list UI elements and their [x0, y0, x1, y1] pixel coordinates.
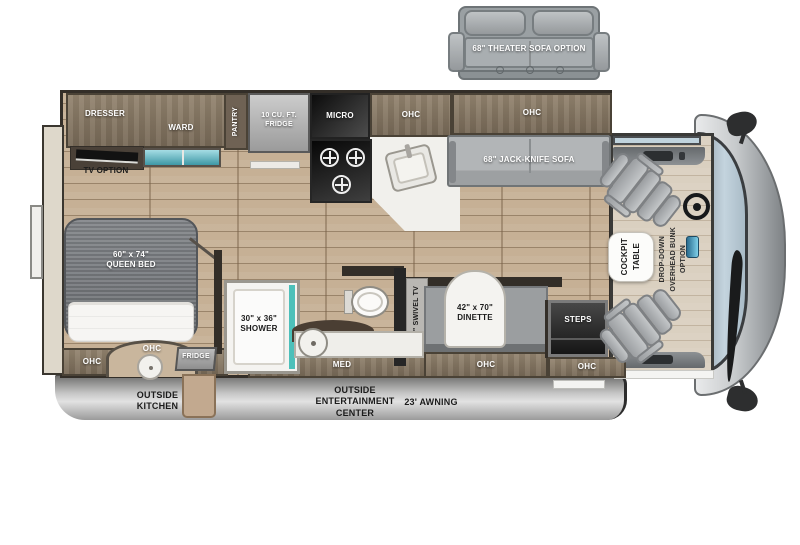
cockpit-table-label: COCKPIT [620, 238, 630, 275]
entry-ohc-label: OHC [548, 362, 626, 372]
bedroom-ohc-label: OHC [62, 357, 122, 367]
toilet-icon [351, 286, 389, 318]
rear-window [30, 205, 43, 279]
outside-kitchen-sink-icon [137, 354, 163, 380]
dinette-ohc-label: OHC [424, 360, 548, 370]
outside-fridge-label: FRIDGE [176, 353, 216, 362]
entry-step-strip [553, 380, 605, 389]
sofa-back-cushion [532, 10, 594, 36]
pantry-cabinet: PANTRY [224, 93, 248, 150]
awning-label: 23' AWNING [385, 397, 477, 408]
sink-drain [149, 366, 153, 370]
bunk-option-label: OPTION [680, 245, 689, 273]
bunk-option-label: OVERHEAD BUNK [670, 227, 679, 291]
fridge-shelf [250, 161, 300, 169]
bunk-option-label: DROP-DOWN [659, 236, 668, 283]
microwave-label: MICRO [310, 111, 370, 121]
pantry-label: PANTRY [232, 107, 241, 136]
sofa-hinge-icon [556, 66, 564, 74]
drop-down-bunk-option: DROP-DOWN OVERHEAD BUNK OPTION [652, 206, 696, 312]
theater-sofa-label: 68" THEATER SOFA OPTION [444, 44, 614, 54]
dash-vent [679, 152, 685, 160]
outside-kitchen-panel [182, 374, 216, 418]
burner-icon [320, 148, 339, 167]
tv-option-label: TV OPTION [74, 166, 138, 176]
burner-icon [332, 175, 351, 194]
sofa-hinge-icon [526, 66, 534, 74]
kitchen-ohc-label: OHC [370, 110, 452, 120]
sink-drain [311, 341, 316, 346]
cooktop [310, 139, 372, 203]
rv-floorplan: OUTSIDE KITCHEN OUTSIDE ENTERTAINMENT CE… [0, 0, 800, 545]
bed-blanket [68, 302, 194, 342]
cockpit-table: COCKPIT TABLE [608, 232, 654, 282]
queen-bed-label: 60" x 74" QUEEN BED [64, 250, 198, 270]
cockpit-table-label: TABLE [632, 243, 642, 270]
burner-icon [346, 148, 365, 167]
entry-door-sill [614, 370, 714, 379]
refrigerator-label: 10 CU. FT. FRIDGE [248, 112, 310, 130]
sofa-ohc-label: OHC [452, 108, 612, 118]
bed-bath-wall [214, 250, 222, 354]
steps-label: STEPS [548, 315, 608, 325]
theater-sofa-option: 68" THEATER SOFA OPTION [444, 4, 614, 84]
drawer-divider [182, 150, 184, 165]
rear-wall [42, 125, 64, 375]
ward-drawers [143, 148, 221, 167]
outside-kitchen-ohc-label: OHC [122, 344, 182, 354]
dinette-label: 42" x 70" DINETTE [444, 303, 506, 323]
dresser-ward-cabinet [66, 93, 226, 148]
dresser-label: DRESSER [70, 109, 140, 119]
bath-sink-icon [298, 328, 328, 358]
jack-knife-sofa-label: 68" JACK-KNIFE SOFA [447, 155, 611, 165]
shower-label: 30" x 36" SHOWER [224, 314, 294, 334]
toilet-seat [357, 292, 383, 312]
ward-label: WARD [146, 123, 216, 133]
med-cabinet-label: MED [312, 360, 372, 370]
awning-skirt: OUTSIDE KITCHEN OUTSIDE ENTERTAINMENT CE… [55, 374, 627, 420]
sofa-back-cushion [464, 10, 526, 36]
dinette-bench-right [502, 286, 548, 346]
sofa-hinge-icon [496, 66, 504, 74]
